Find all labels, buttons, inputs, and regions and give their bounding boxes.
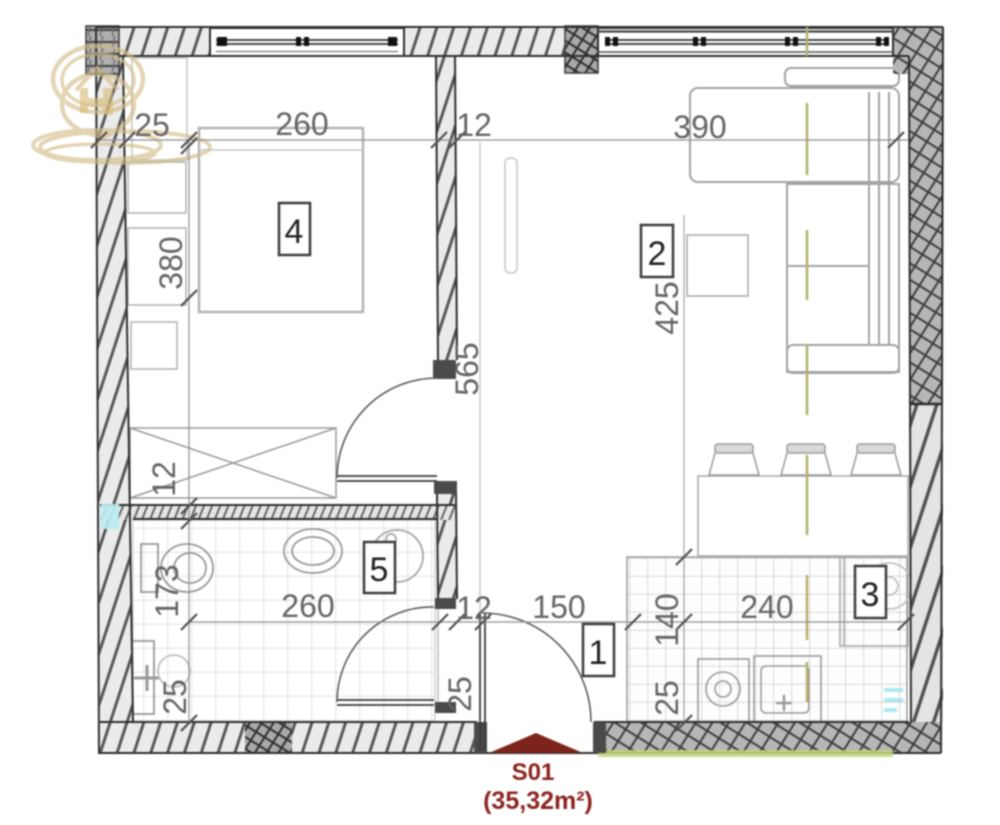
svg-text:12: 12 — [146, 461, 182, 497]
svg-text:140: 140 — [649, 593, 685, 646]
svg-text:565: 565 — [449, 342, 485, 395]
svg-text:2: 2 — [648, 235, 667, 273]
svg-text:1: 1 — [589, 634, 608, 672]
svg-text:4: 4 — [285, 213, 304, 251]
svg-text:5: 5 — [370, 551, 389, 589]
svg-text:25: 25 — [134, 107, 170, 143]
svg-text:260: 260 — [275, 106, 328, 142]
svg-text:173: 173 — [149, 564, 185, 617]
svg-text:25: 25 — [442, 676, 478, 712]
svg-text:150: 150 — [532, 589, 585, 625]
svg-text:390: 390 — [673, 109, 726, 145]
svg-text:12: 12 — [456, 107, 492, 143]
svg-text:260: 260 — [281, 588, 334, 624]
svg-text:380: 380 — [153, 236, 189, 289]
svg-text:425: 425 — [649, 281, 685, 334]
svg-text:25: 25 — [649, 680, 685, 716]
svg-text:240: 240 — [740, 589, 793, 625]
svg-text:25: 25 — [157, 679, 193, 715]
svg-text:12: 12 — [456, 590, 492, 626]
svg-text:(35,32m²): (35,32m²) — [483, 787, 593, 815]
svg-text:S01: S01 — [512, 759, 555, 786]
svg-text:3: 3 — [861, 576, 880, 614]
